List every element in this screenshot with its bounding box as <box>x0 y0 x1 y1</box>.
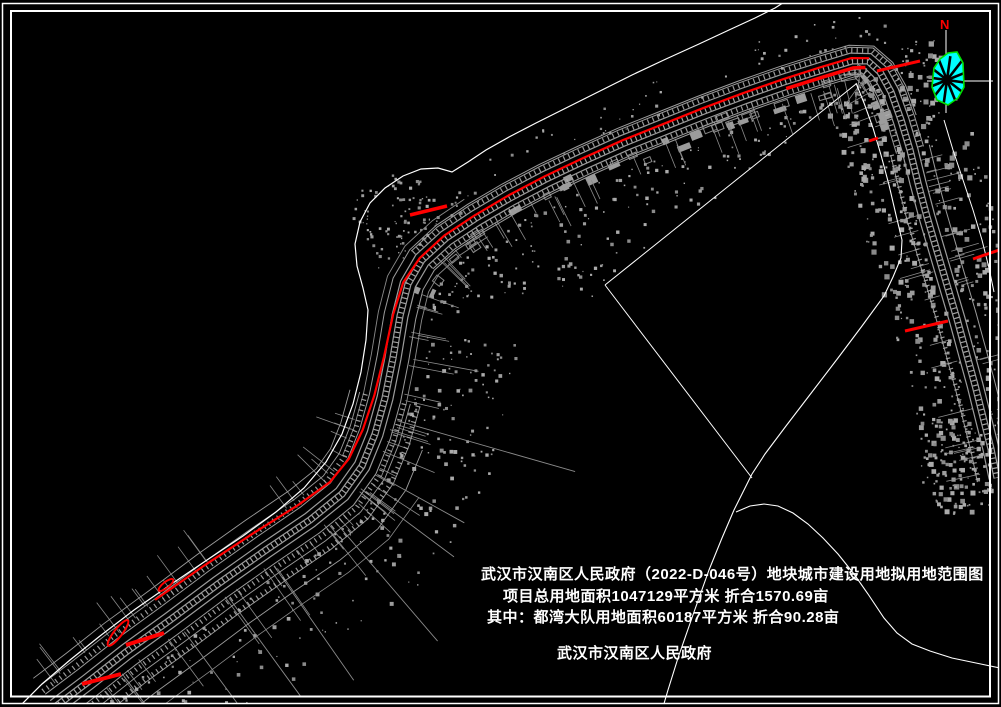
title-line-total-area: 项目总用地面积1047129平方米 折合1570.69亩 <box>503 588 829 605</box>
signature-line-government: 武汉市汉南区人民政府 <box>557 645 712 662</box>
cad-plan-drawing[interactable]: N 武汉市汉南区人民政府（2022-D-046号）地块城市建设用地拟用地范围图 … <box>0 0 1001 707</box>
title-line-project: 武汉市汉南区人民政府（2022-D-046号）地块城市建设用地拟用地范围图 <box>481 566 984 583</box>
field-boundary-lines <box>85 421 575 707</box>
map-canvas[interactable]: N <box>0 0 1001 707</box>
road-corridor-lines <box>33 45 1001 707</box>
compass-rose: N <box>923 17 993 113</box>
title-line-duwan-area: 其中：都湾大队用地面积60187平方米 折合90.28亩 <box>487 609 839 626</box>
north-label: N <box>940 17 949 32</box>
